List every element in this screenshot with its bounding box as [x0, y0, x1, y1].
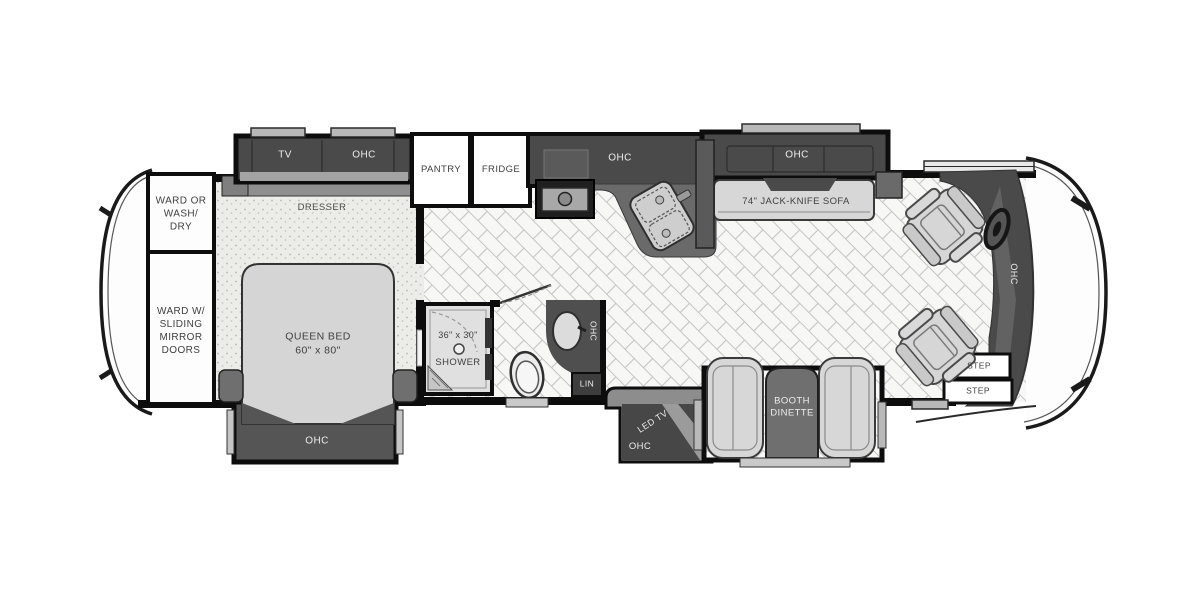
- rear-cap: [100, 170, 152, 414]
- slideout-top-rail: [742, 124, 860, 133]
- rv-floorplan: WARD OR WASH/ DRY WARD W/ SLIDING MIRROR…: [0, 0, 1200, 600]
- sofa-end-block: [876, 172, 902, 198]
- dinette-bench: [819, 358, 875, 458]
- dinette-bench: [707, 358, 763, 458]
- slideout-rail: [878, 402, 886, 448]
- nightstand: [393, 370, 417, 402]
- sofa-end-cabinet: [696, 140, 714, 248]
- slideout-rail: [506, 398, 548, 407]
- floorplan-drawing: [0, 0, 1200, 600]
- sofa-back-notch: [763, 178, 837, 191]
- slideout-floor-edge: [740, 458, 850, 467]
- shower-door: [485, 318, 492, 348]
- pantry: [412, 134, 470, 206]
- rear-cap-tick: [100, 371, 111, 378]
- entry-step-lower: [944, 380, 1012, 403]
- sofa-ohc-cabinet: [702, 132, 888, 178]
- stove-burner: [559, 193, 572, 206]
- slideout-top-rail: [251, 128, 305, 137]
- dinette-table: [766, 368, 818, 458]
- slideout-rail: [694, 400, 702, 450]
- fridge: [472, 134, 530, 206]
- slideout-rail: [912, 400, 948, 409]
- bath-sink: [553, 312, 581, 350]
- slideout-rail: [227, 410, 234, 454]
- wardrobe-washer-dryer: [148, 174, 214, 252]
- shower-drain: [454, 344, 464, 354]
- slideout-top-rail: [331, 128, 395, 137]
- rear-cap-tick: [100, 208, 111, 215]
- nightstand: [219, 370, 243, 402]
- linen-cabinet: [572, 373, 602, 396]
- queen-bed: [242, 264, 394, 424]
- shower-door: [485, 354, 492, 380]
- bedroom-cabinet-ledge: [240, 172, 408, 181]
- wardrobe-sliding-mirror: [148, 252, 214, 404]
- slideout-rail: [396, 410, 403, 454]
- range-hood: [544, 150, 588, 178]
